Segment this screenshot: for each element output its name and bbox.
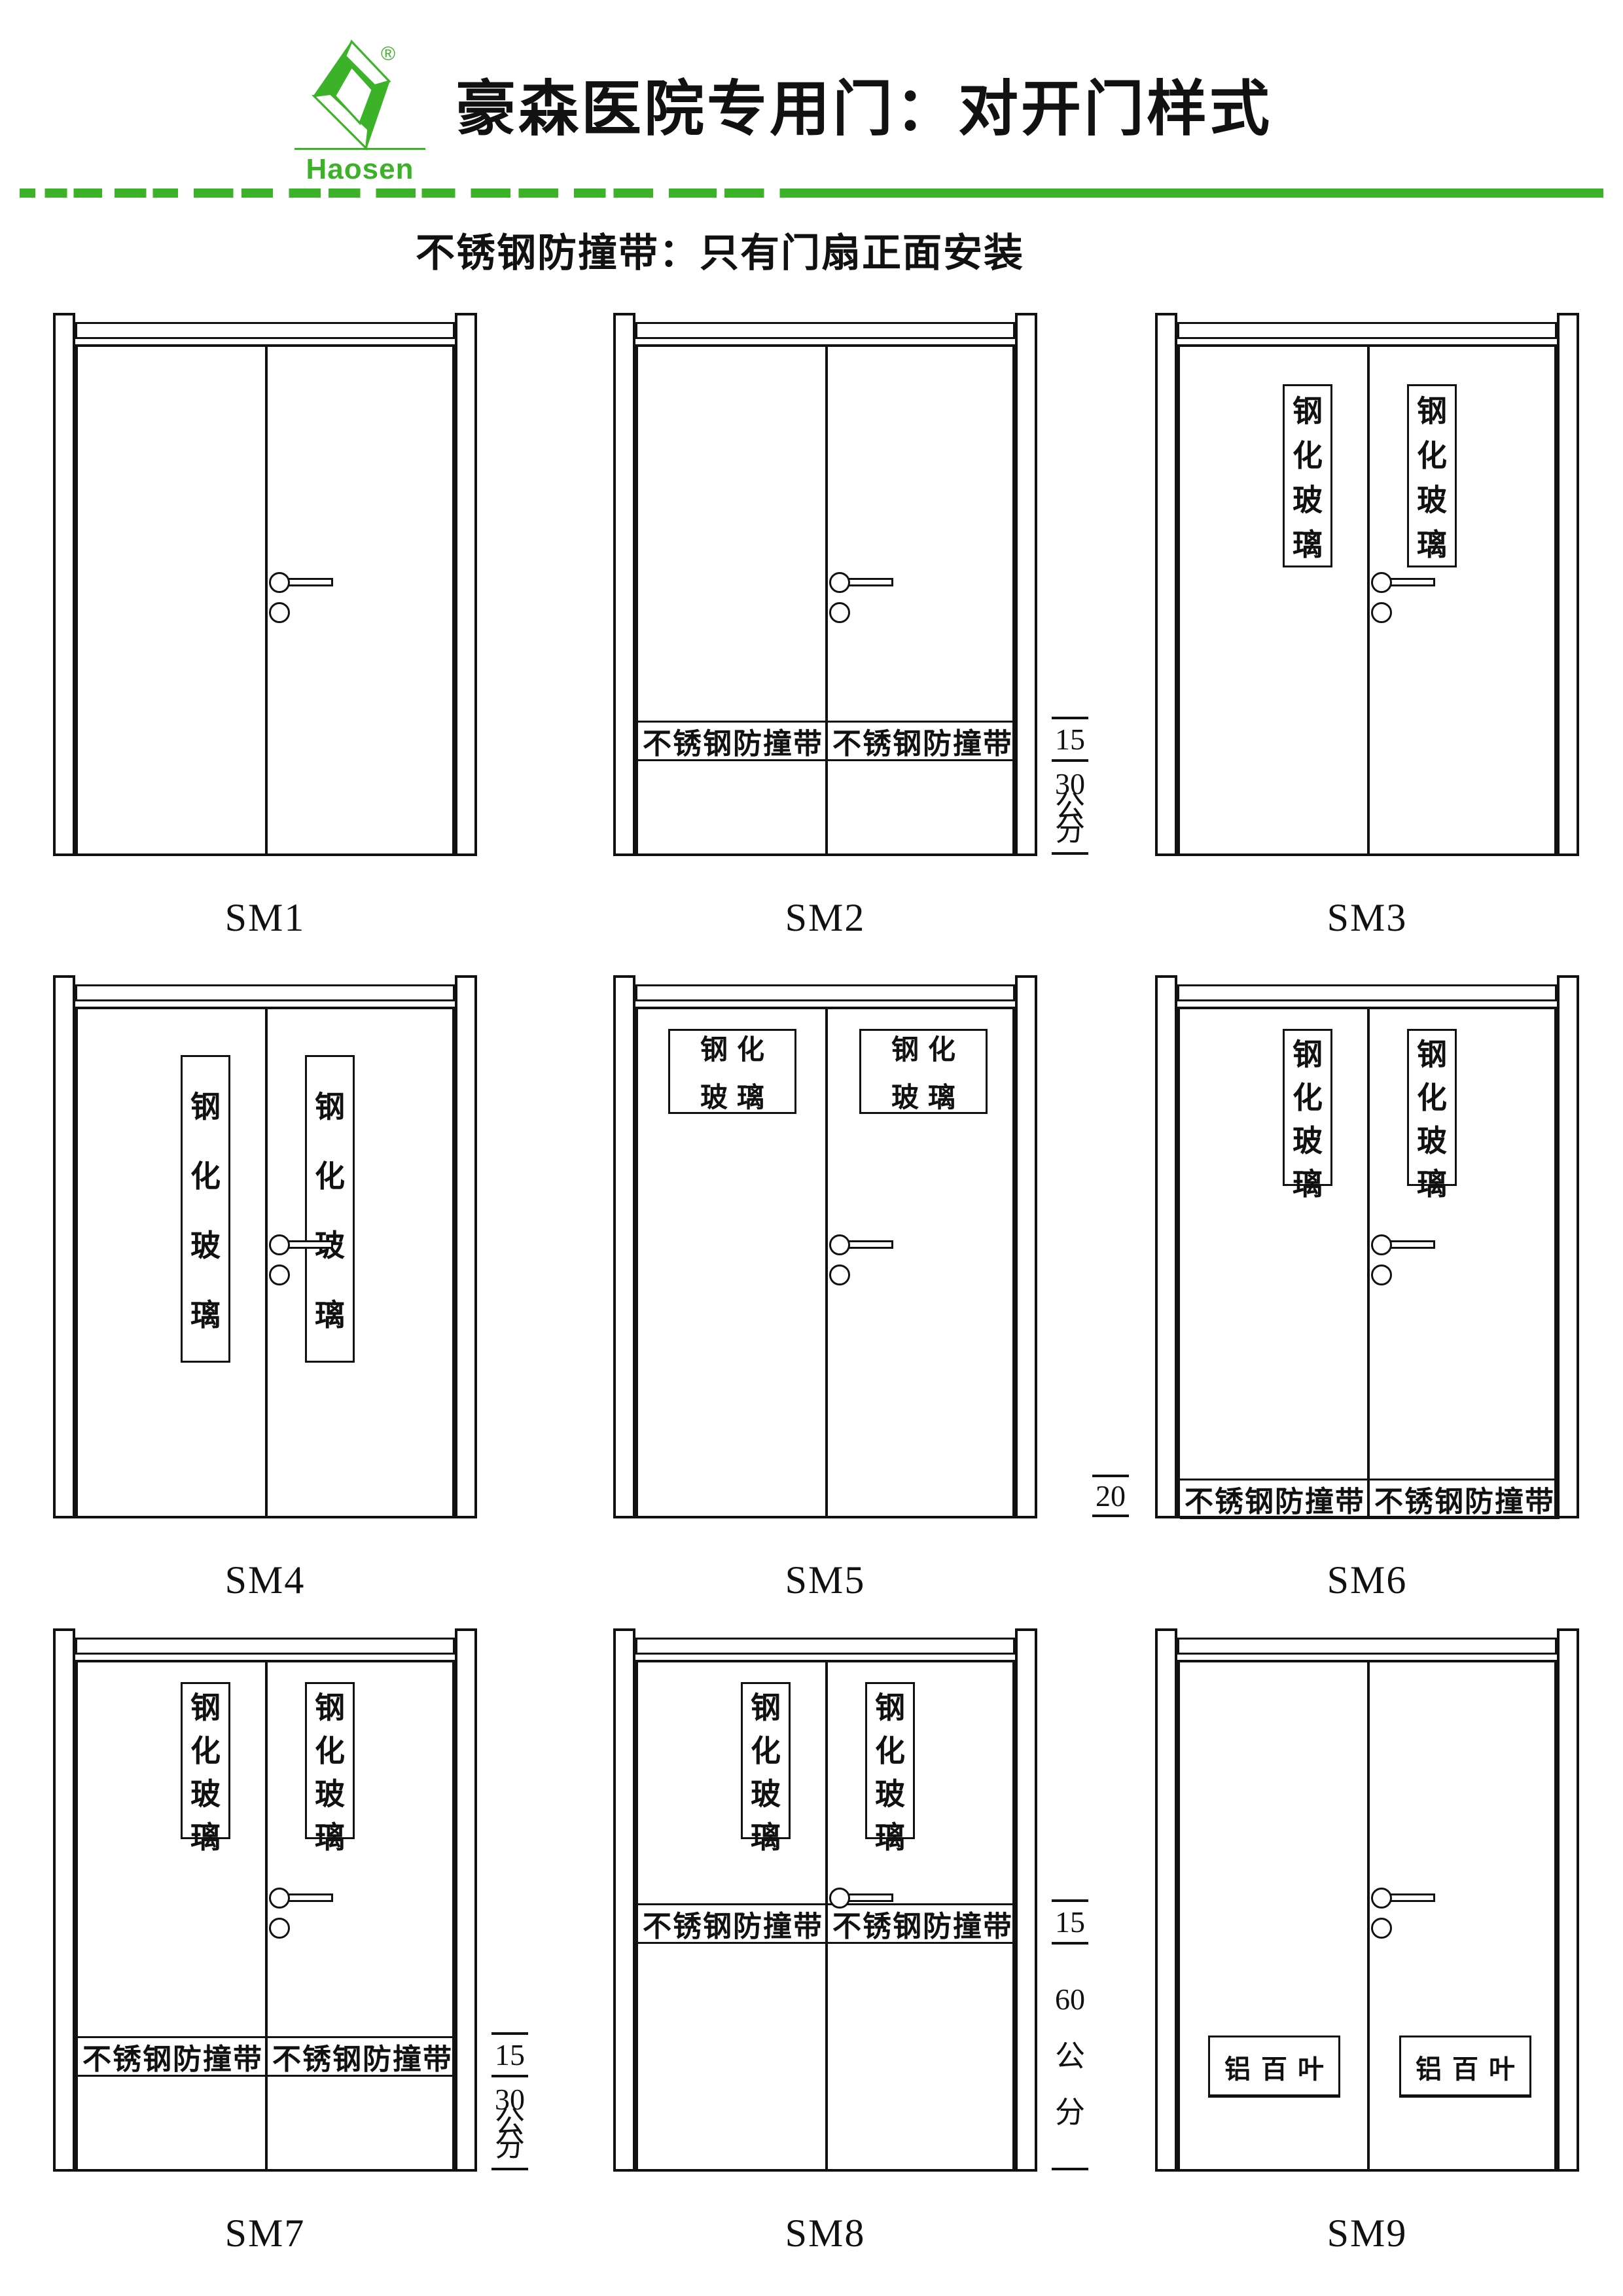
door-style-label: SM2 (613, 895, 1037, 941)
glass-window: 钢化玻璃 (741, 1682, 791, 1839)
door-handle-rosette (829, 1888, 850, 1909)
door-style-label: SM5 (613, 1558, 1037, 1603)
louver-panel: 铝百叶 (1208, 2036, 1340, 2098)
dimension-label: 60 (1043, 1982, 1097, 2017)
door-handle-rosette (1371, 1234, 1392, 1255)
door-frame-lintel (75, 322, 455, 339)
logo-underline (294, 148, 425, 150)
glass-label-char: 钢 (1293, 387, 1323, 431)
bumper-band-label-left: 不锈钢防撞带 (638, 723, 828, 759)
door-lock-cylinder (269, 1265, 290, 1285)
dimension-tick (1052, 717, 1088, 719)
glass-label-char: 玻 (315, 1770, 345, 1814)
glass-window: 钢化玻璃 (1283, 1029, 1332, 1186)
door-frame-post-left (53, 313, 75, 856)
louver-panel: 铝百叶 (1399, 2036, 1531, 2098)
glass-label-line: 玻璃 (882, 1075, 965, 1115)
door-frame-lintel (75, 984, 455, 1001)
door-leaves: 钢化玻璃钢化玻璃 (1177, 344, 1557, 856)
door-lock-cylinder (829, 602, 850, 623)
door-frame-post-left (1155, 313, 1177, 856)
door-figure-SM5: 钢化玻璃钢化玻璃SM5 (613, 975, 1037, 1518)
door-frame-post-right (1015, 1628, 1037, 2172)
door-lock-cylinder (269, 1918, 290, 1939)
door-frame-lintel (1177, 322, 1557, 339)
dimension-label: 15 (1043, 1905, 1097, 1940)
glass-window: 钢化玻璃 (181, 1682, 230, 1839)
louver-label: 铝百叶 (1399, 2047, 1531, 2087)
door-leaf-divider (825, 347, 828, 853)
dimension-tick (1052, 2168, 1088, 2170)
glass-label-char: 化 (315, 1727, 345, 1770)
door-handle-rosette (829, 572, 850, 593)
door-frame-post-right (1557, 313, 1579, 856)
glass-label-char: 璃 (1293, 1160, 1323, 1204)
door-figure-SM9: 铝百叶铝百叶SM9 (1155, 1628, 1579, 2172)
door-leaf-divider (825, 1009, 828, 1516)
door-lock-cylinder (269, 602, 290, 623)
registered-mark: ® (381, 43, 395, 65)
door-frame-post-left (613, 975, 635, 1518)
door-lock-cylinder (1371, 1918, 1392, 1939)
door-figure-SM8: 钢化玻璃钢化玻璃不锈钢防撞带不锈钢防撞带1560公分SM8 (613, 1628, 1037, 2172)
door-frame-lintel (75, 1638, 455, 1655)
glass-window: 钢化玻璃 (1407, 384, 1457, 567)
page-subtitle: 不锈钢防撞带：只有门扇正面安装 (262, 221, 1178, 278)
door-style-label: SM7 (53, 2211, 477, 2256)
door-style-label: SM3 (1155, 895, 1579, 941)
glass-label-char: 钢 (315, 1684, 345, 1727)
page-title: 豪森医院专用门：对开门样式 (406, 60, 1322, 147)
door-leaves: 钢化玻璃钢化玻璃 (635, 1007, 1015, 1518)
door-leaf-divider (265, 1009, 268, 1516)
door-frame-post-right (455, 975, 477, 1518)
door-style-label: SM6 (1155, 1558, 1579, 1603)
glass-label-char: 璃 (315, 1814, 345, 1857)
door-frame-post-right (1557, 1628, 1579, 2172)
dimension-tick (1052, 759, 1088, 762)
glass-label-char: 璃 (315, 1291, 345, 1335)
bumper-band-label-right: 不锈钢防撞带 (1370, 1480, 1560, 1517)
door-frame-post-right (1015, 313, 1037, 856)
door-handle-rosette (269, 1234, 290, 1255)
door-figure-SM2: 不锈钢防撞带不锈钢防撞带1530公分SM2 (613, 313, 1037, 856)
dimension-tick (1052, 1942, 1088, 1945)
dimension-annotation: 1560公分 (1043, 1628, 1128, 2172)
dimension-tick (1052, 1899, 1088, 1902)
glass-label-char: 玻 (190, 1222, 221, 1265)
door-lock-cylinder (829, 1265, 850, 1285)
bumper-band-label-left: 不锈钢防撞带 (1180, 1480, 1370, 1517)
dimension-tick (1092, 1515, 1129, 1517)
glass-label-char: 玻 (875, 1770, 905, 1814)
dimension-tick (491, 2075, 528, 2077)
door-style-label: SM1 (53, 895, 477, 941)
glass-window: 钢化玻璃 (859, 1029, 988, 1114)
bumper-band-label-right: 不锈钢防撞带 (828, 723, 1018, 759)
door-leaves: 钢化玻璃钢化玻璃不锈钢防撞带不锈钢防撞带 (75, 1660, 455, 2172)
glass-label-char: 璃 (190, 1291, 221, 1335)
door-frame-post-left (53, 1628, 75, 2172)
dimension-label: 公 (1043, 2039, 1097, 2074)
door-handle-rosette (269, 572, 290, 593)
glass-label-char: 钢 (315, 1083, 345, 1126)
glass-window: 钢化玻璃 (181, 1055, 230, 1363)
glass-label-char: 化 (1417, 1074, 1447, 1117)
dimension-label: 分 (1043, 2095, 1097, 2130)
dimension-tick (491, 2032, 528, 2035)
door-frame-post-left (53, 975, 75, 1518)
bumper-band: 不锈钢防撞带不锈钢防撞带 (638, 721, 1018, 761)
glass-label-char: 化 (751, 1727, 781, 1770)
glass-label-char: 化 (1293, 1074, 1323, 1117)
door-lock-cylinder (1371, 602, 1392, 623)
dimension-label: 15 (482, 2037, 537, 2073)
glass-label-char: 玻 (1293, 1117, 1323, 1160)
glass-label-char: 钢 (1417, 1031, 1447, 1074)
glass-label-char: 璃 (1417, 1160, 1447, 1204)
door-style-label: SM9 (1155, 2211, 1579, 2256)
glass-window: 钢化玻璃 (865, 1682, 915, 1839)
door-leaf-divider (1367, 1662, 1370, 2169)
door-frame-lintel (635, 322, 1015, 339)
door-figure-SM3: 钢化玻璃钢化玻璃SM3 (1155, 313, 1579, 856)
door-leaf-divider (265, 1662, 268, 2169)
dimension-annotation: 1530公分 (1043, 313, 1128, 856)
dimension-label: 15 (1043, 722, 1097, 757)
dimension-tick (1092, 1475, 1129, 1477)
bumper-band-label-left: 不锈钢防撞带 (78, 2038, 268, 2075)
glass-label-char: 璃 (875, 1814, 905, 1857)
bumper-band: 不锈钢防撞带不锈钢防撞带 (1180, 1479, 1560, 1519)
dimension-label: 分 (482, 2128, 537, 2164)
glass-label-char: 化 (315, 1153, 345, 1196)
door-handle-rosette (829, 1234, 850, 1255)
door-handle-rosette (269, 1888, 290, 1909)
dimension-annotation: 20 (1083, 975, 1168, 1518)
door-figure-SM7: 钢化玻璃钢化玻璃不锈钢防撞带不锈钢防撞带1530公分SM7 (53, 1628, 477, 2172)
glass-label-line: 钢化 (882, 1028, 965, 1067)
door-handle-rosette (1371, 572, 1392, 593)
glass-label-char: 璃 (751, 1814, 781, 1857)
glass-label-char: 玻 (190, 1770, 221, 1814)
glass-label-char: 玻 (1417, 1117, 1447, 1160)
glass-label-char: 化 (190, 1153, 221, 1196)
logo-wordmark: Haosen (281, 153, 438, 186)
dimension-tick (491, 2168, 528, 2170)
bumper-band: 不锈钢防撞带不锈钢防撞带 (78, 2036, 457, 2077)
door-frame-post-right (455, 313, 477, 856)
door-frame-post-left (613, 1628, 635, 2172)
door-figure-SM1: SM1 (53, 313, 477, 856)
glass-label-char: 钢 (1417, 387, 1447, 431)
haosen-diamond-icon (308, 39, 412, 151)
door-leaves: 钢化玻璃钢化玻璃不锈钢防撞带不锈钢防撞带 (635, 1660, 1015, 2172)
door-frame-post-left (1155, 1628, 1177, 2172)
door-leaf-divider (265, 347, 268, 853)
glass-label-char: 化 (875, 1727, 905, 1770)
door-figure-SM4: 钢化玻璃钢化玻璃SM4 (53, 975, 477, 1518)
door-frame-lintel (1177, 984, 1557, 1001)
door-frame-post-right (1557, 975, 1579, 1518)
glass-label-char: 璃 (1293, 521, 1323, 564)
glass-label-line: 玻璃 (691, 1075, 774, 1115)
glass-label-char: 玻 (1417, 476, 1447, 520)
glass-window: 钢化玻璃 (305, 1055, 355, 1363)
door-leaves: 不锈钢防撞带不锈钢防撞带 (635, 344, 1015, 856)
glass-label-char: 化 (1417, 432, 1447, 475)
door-frame-post-right (1015, 975, 1037, 1518)
dimension-tick (1052, 852, 1088, 855)
bumper-band-label-left: 不锈钢防撞带 (638, 1905, 828, 1942)
dimension-label: 20 (1083, 1479, 1138, 1514)
glass-label-char: 化 (190, 1727, 221, 1770)
glass-label-char: 玻 (751, 1770, 781, 1814)
door-leaves (75, 344, 455, 856)
bumper-band-label-right: 不锈钢防撞带 (828, 1905, 1018, 1942)
door-frame-lintel (635, 1638, 1015, 1655)
door-style-label: SM8 (613, 2211, 1037, 2256)
glass-label-line: 钢化 (691, 1028, 774, 1067)
dimension-annotation: 1530公分 (482, 1628, 567, 2172)
glass-label-char: 钢 (751, 1684, 781, 1727)
glass-label-char: 钢 (190, 1684, 221, 1727)
door-handle-rosette (1371, 1888, 1392, 1909)
door-frame-lintel (1177, 1638, 1557, 1655)
door-style-label: SM4 (53, 1558, 477, 1603)
door-leaves: 钢化玻璃钢化玻璃不锈钢防撞带不锈钢防撞带 (1177, 1007, 1557, 1518)
glass-label-char: 玻 (1293, 476, 1323, 520)
door-lock-cylinder (1371, 1265, 1392, 1285)
door-frame-lintel (635, 984, 1015, 1001)
door-leaf-divider (1367, 1009, 1370, 1516)
door-leaf-divider (1367, 347, 1370, 853)
glass-window: 钢化玻璃 (668, 1029, 796, 1114)
glass-label-char: 钢 (1293, 1031, 1323, 1074)
door-leaves: 铝百叶铝百叶 (1177, 1660, 1557, 2172)
glass-window: 钢化玻璃 (305, 1682, 355, 1839)
door-frame-post-left (613, 313, 635, 856)
glass-label-char: 璃 (190, 1814, 221, 1857)
glass-label-char: 化 (1293, 432, 1323, 475)
glass-label-char: 钢 (190, 1083, 221, 1126)
green-divider-rule (20, 188, 1603, 198)
door-leaves: 钢化玻璃钢化玻璃 (75, 1007, 455, 1518)
glass-label-char: 钢 (875, 1684, 905, 1727)
glass-label-char: 璃 (1417, 521, 1447, 564)
louver-label: 铝百叶 (1208, 2047, 1340, 2087)
bumper-band: 不锈钢防撞带不锈钢防撞带 (638, 1903, 1018, 1944)
glass-window: 钢化玻璃 (1283, 384, 1332, 567)
door-figure-SM6: 钢化玻璃钢化玻璃不锈钢防撞带不锈钢防撞带20SM6 (1155, 975, 1579, 1518)
door-frame-post-right (455, 1628, 477, 2172)
dimension-label: 分 (1043, 813, 1097, 848)
bumper-band-label-right: 不锈钢防撞带 (268, 2038, 457, 2075)
glass-window: 钢化玻璃 (1407, 1029, 1457, 1186)
